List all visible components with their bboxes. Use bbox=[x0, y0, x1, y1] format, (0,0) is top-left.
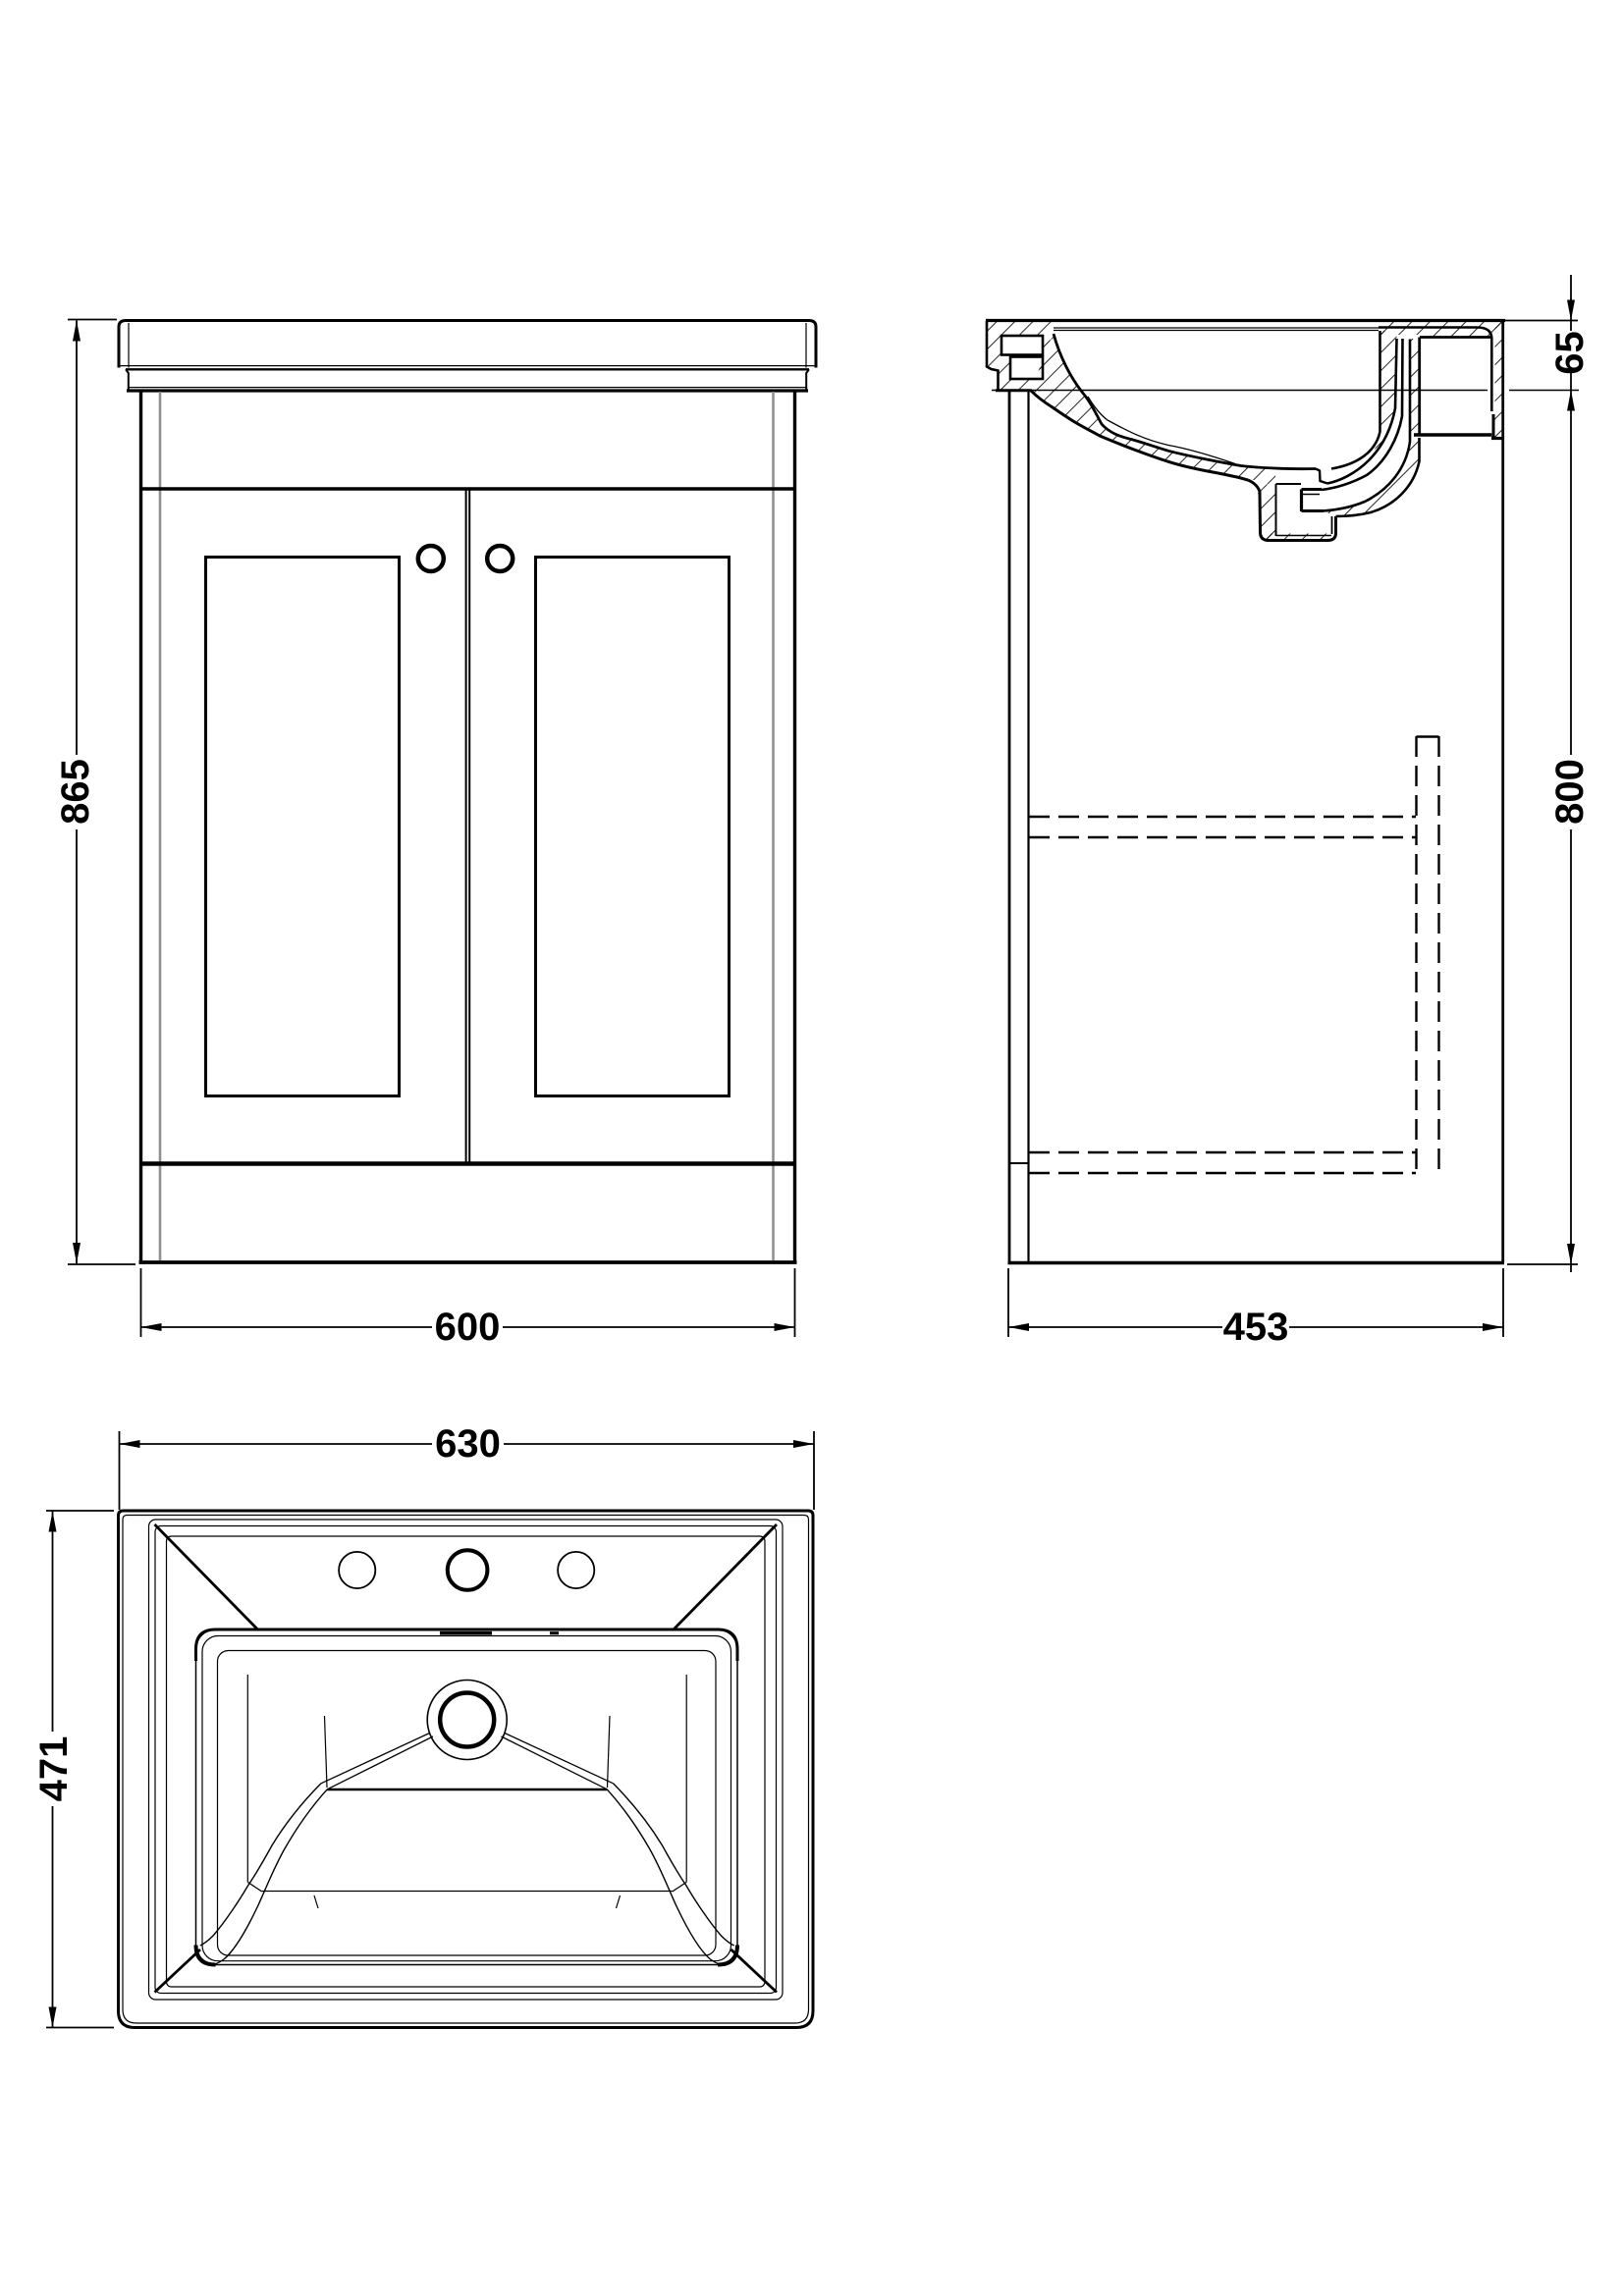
svg-text:630: 630 bbox=[435, 1422, 501, 1466]
svg-text:865: 865 bbox=[54, 759, 97, 825]
svg-text:65: 65 bbox=[1548, 331, 1592, 375]
svg-text:453: 453 bbox=[1223, 1306, 1289, 1349]
svg-text:471: 471 bbox=[32, 1736, 76, 1802]
svg-text:600: 600 bbox=[435, 1306, 501, 1349]
svg-text:800: 800 bbox=[1548, 759, 1592, 825]
